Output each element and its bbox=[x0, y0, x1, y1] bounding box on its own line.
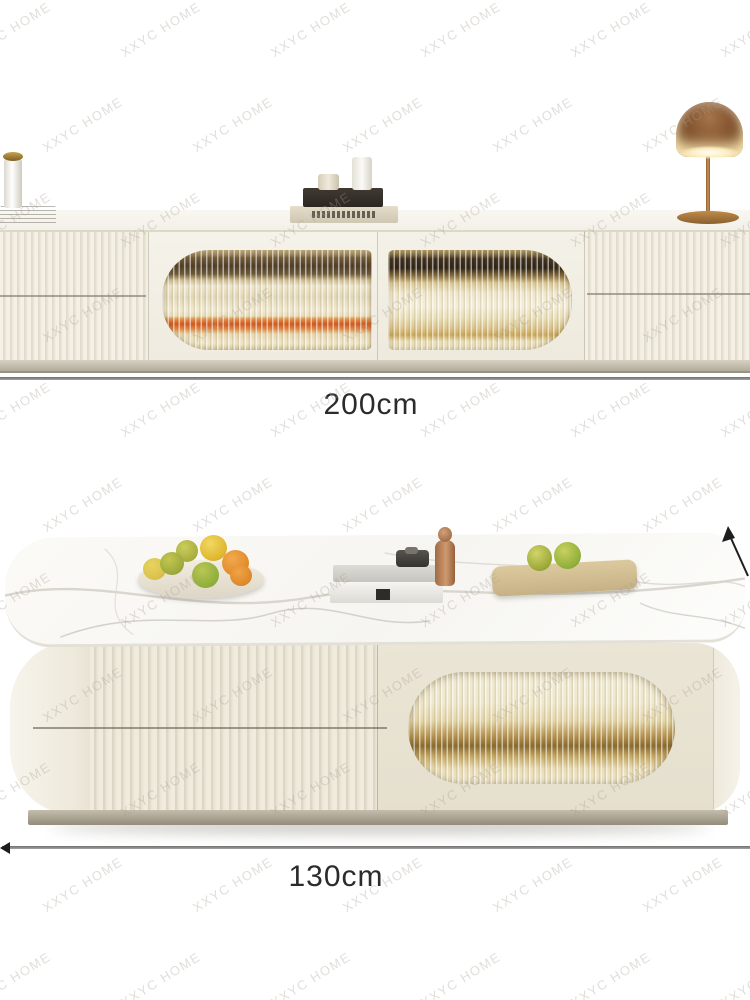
watermark-text: XXYC HOME bbox=[268, 949, 354, 1000]
reeded-glass-texture bbox=[408, 672, 675, 784]
watermark-text: XXYC HOME bbox=[118, 0, 204, 60]
watermark-text: XXYC HOME bbox=[40, 854, 126, 915]
magazine-stack bbox=[0, 206, 56, 226]
tv-stand-reeded-glass-left bbox=[162, 250, 372, 350]
book-spine-label bbox=[376, 589, 390, 600]
watermark-text: XXYC HOME bbox=[490, 474, 576, 535]
coffee-table-oval-reeded-glass bbox=[408, 672, 675, 784]
vase-gold-rim bbox=[3, 152, 23, 161]
reeded-glass-texture bbox=[162, 250, 372, 350]
watermark-text: XXYC HOME bbox=[40, 94, 126, 155]
reeded-glass-texture bbox=[388, 250, 572, 350]
tv-stand-drawer-divider-left bbox=[0, 295, 146, 297]
tv-stand-fluted-drawers-right bbox=[585, 232, 750, 360]
watermark-text: XXYC HOME bbox=[118, 949, 204, 1000]
watermark-text: XXYC HOME bbox=[40, 474, 126, 535]
tv-stand-drawer-divider-right bbox=[587, 293, 750, 295]
candle-jar-small bbox=[318, 174, 339, 190]
fruit-lime bbox=[192, 562, 219, 588]
watermark-text: XXYC HOME bbox=[268, 0, 354, 60]
watermark-text: XXYC HOME bbox=[718, 949, 750, 1000]
stacked-book-middle bbox=[333, 565, 437, 582]
depth-dimension-arrow bbox=[718, 524, 750, 580]
watermark-text: XXYC HOME bbox=[0, 949, 54, 1000]
watermark-text: XXYC HOME bbox=[490, 854, 576, 915]
watermark-text: XXYC HOME bbox=[718, 379, 750, 440]
watermark-text: XXYC HOME bbox=[568, 379, 654, 440]
coffee-table-drawer-divider bbox=[33, 727, 387, 729]
table-lamp-stem bbox=[706, 156, 710, 218]
dimension-label-coffee-table: 130cm bbox=[226, 860, 446, 894]
watermark-layer: XXYC HOMEXXYC HOMEXXYC HOMEXXYC HOMEXXYC… bbox=[0, 0, 750, 1000]
watermark-text: XXYC HOME bbox=[190, 474, 276, 535]
watermark-text: XXYC HOME bbox=[640, 474, 726, 535]
watermark-text: XXYC HOME bbox=[0, 0, 54, 60]
watermark-text: XXYC HOME bbox=[568, 0, 654, 60]
book-spine-marks bbox=[312, 211, 376, 218]
coffee-book-top bbox=[303, 188, 383, 207]
figurine-body bbox=[435, 540, 455, 586]
coffee-book-bottom bbox=[290, 206, 398, 223]
dimension-arrowhead-left bbox=[0, 842, 10, 854]
dimension-line-width-coffee-table bbox=[2, 846, 750, 849]
watermark-text: XXYC HOME bbox=[190, 94, 276, 155]
tv-stand-reeded-glass-right bbox=[388, 250, 572, 350]
tv-stand-plinth bbox=[0, 360, 750, 373]
watermark-text: XXYC HOME bbox=[418, 0, 504, 60]
table-lamp-base bbox=[677, 211, 739, 224]
coffee-table-rounded-end-right bbox=[713, 643, 740, 813]
coffee-table-plinth bbox=[28, 810, 728, 825]
watermark-text: XXYC HOME bbox=[118, 379, 204, 440]
watermark-text: XXYC HOME bbox=[0, 379, 54, 440]
watermark-text: XXYC HOME bbox=[418, 949, 504, 1000]
watermark-text: XXYC HOME bbox=[640, 854, 726, 915]
watermark-text: XXYC HOME bbox=[568, 949, 654, 1000]
dimension-line-width-tv-stand bbox=[0, 377, 750, 380]
vase bbox=[4, 158, 22, 208]
fruit-green-apple bbox=[160, 552, 184, 575]
dimension-label-tv-stand: 200cm bbox=[261, 388, 481, 422]
table-lamp-glow bbox=[681, 146, 738, 159]
fruit-pear bbox=[554, 542, 581, 569]
watermark-text: XXYC HOME bbox=[718, 0, 750, 60]
fruit-pear bbox=[527, 545, 552, 571]
watermark-text: XXYC HOME bbox=[340, 94, 426, 155]
fruit-orange bbox=[230, 565, 252, 586]
watermark-text: XXYC HOME bbox=[490, 94, 576, 155]
figurine-head bbox=[438, 527, 452, 542]
candle-jar-tall bbox=[352, 157, 372, 190]
camera-lens bbox=[405, 547, 418, 554]
watermark-text: XXYC HOME bbox=[340, 474, 426, 535]
product-photo-canvas: 200cm 130cm X bbox=[0, 0, 750, 1000]
